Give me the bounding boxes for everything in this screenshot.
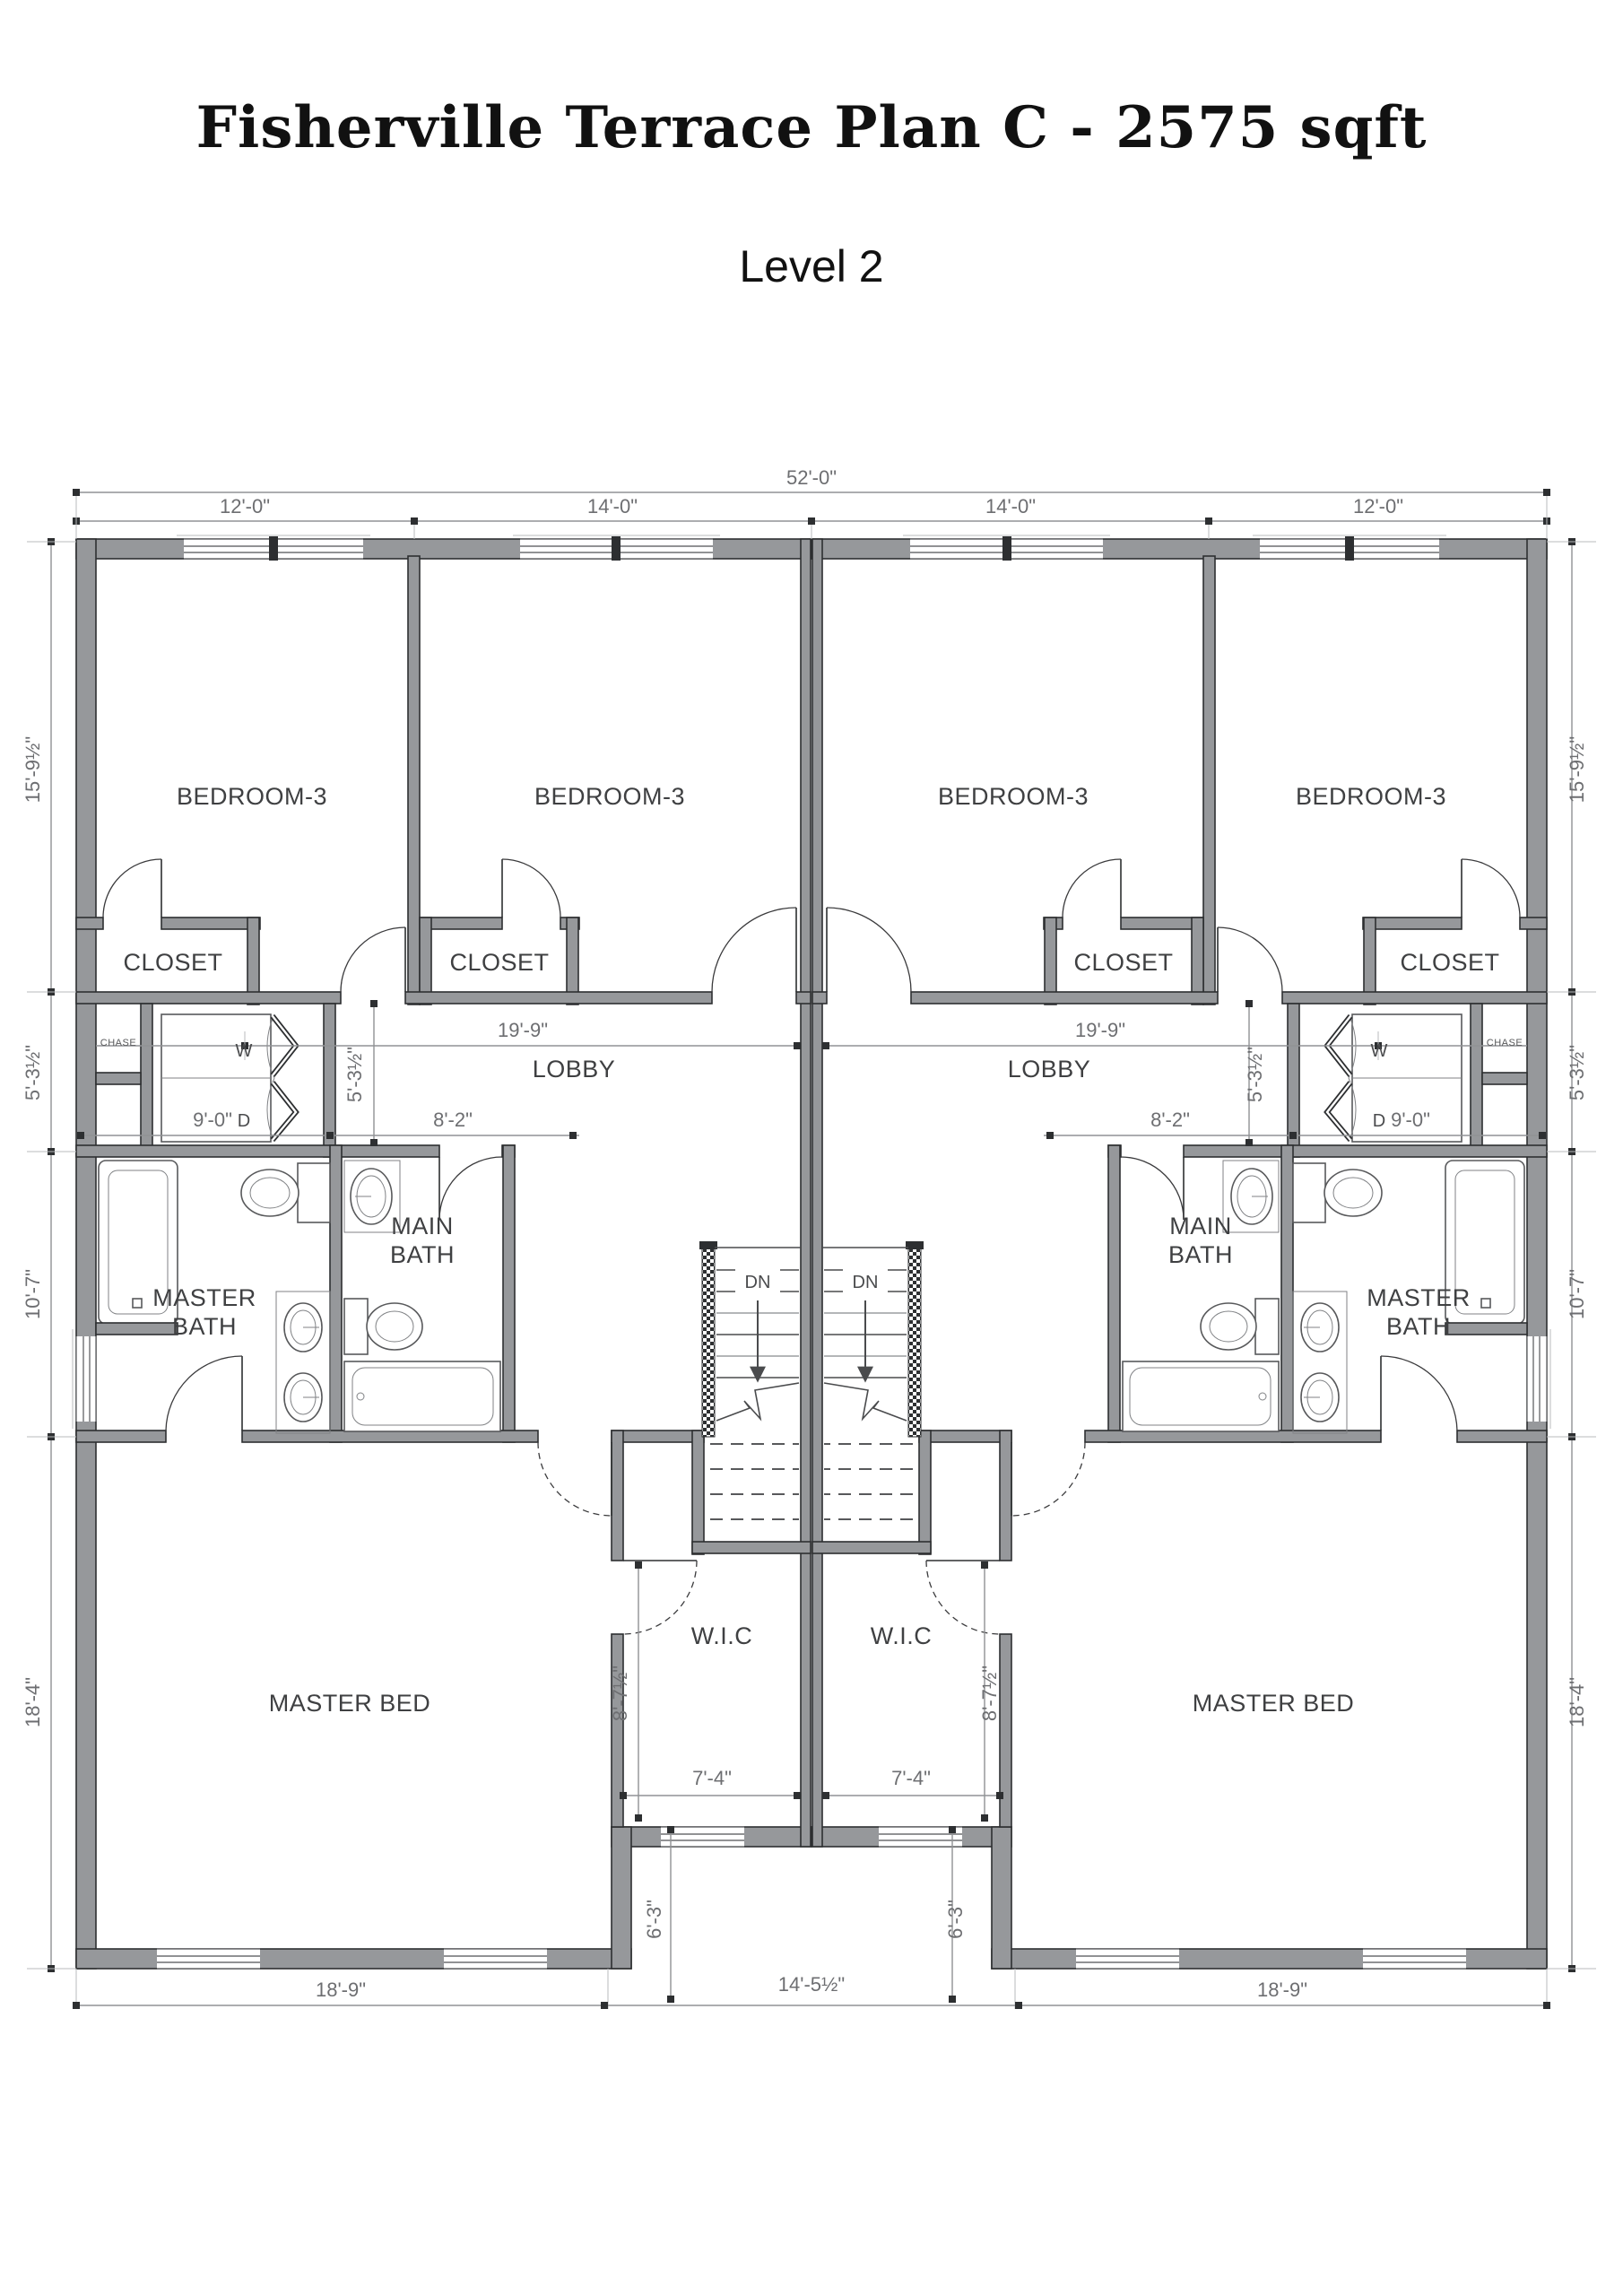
label-main-bath-right-1: MAIN xyxy=(1169,1213,1232,1239)
label-dryer-right: D xyxy=(1373,1111,1385,1131)
dim-laundry-right: 9'-0" xyxy=(1391,1109,1430,1131)
dim-wic-d-right: 8'-7½" xyxy=(978,1665,1001,1721)
dim-lines-global xyxy=(27,489,1596,2009)
dim-side1-right: 15'-9½" xyxy=(1566,736,1588,803)
label-closet-4: CLOSET xyxy=(1400,949,1499,976)
label-dn-right: DN xyxy=(853,1273,879,1292)
dim-wic-o-left: 6'-3" xyxy=(643,1900,665,1939)
dim-vanity-right: 8'-2" xyxy=(1150,1109,1190,1131)
dim-side2-left: 5'-3½" xyxy=(22,1045,44,1100)
dim-side4-right: 18'-4" xyxy=(1566,1677,1588,1727)
dim-laundry-left: 9'-0" xyxy=(193,1109,232,1131)
label-wic-right: W.I.C xyxy=(871,1622,933,1649)
dim-bottom-mid: 14'-5½" xyxy=(778,1973,845,1996)
dim-lobby-h-right: 5'-3½" xyxy=(1244,1047,1266,1102)
dim-bottom-right: 18'-9" xyxy=(1257,1979,1307,2001)
floor-plan: 52'-0" 12'-0" 14'-0" 14'-0" 12'-0" 15'-9… xyxy=(0,0,1623,2296)
dim-side3-right: 10'-7" xyxy=(1566,1269,1588,1319)
label-master-bed-left: MASTER BED xyxy=(269,1690,431,1717)
dim-vanity-left: 8'-2" xyxy=(433,1109,473,1131)
label-master-bed-right: MASTER BED xyxy=(1193,1690,1355,1717)
label-master-bath-right-2: BATH xyxy=(1386,1313,1451,1340)
label-bedroom3-3: BEDROOM-3 xyxy=(938,783,1089,810)
label-main-bath-left-2: BATH xyxy=(390,1241,455,1268)
dim-wic-o-right: 6'-3" xyxy=(944,1900,967,1939)
label-closet-2: CLOSET xyxy=(449,949,549,976)
dim-bottom-left: 18'-9" xyxy=(316,1979,366,2001)
label-washer-left: W xyxy=(236,1041,253,1061)
label-dryer-left: D xyxy=(238,1111,250,1131)
label-chase-right: CHASE xyxy=(1487,1038,1523,1048)
dim-overall: 52'-0" xyxy=(786,466,837,489)
dim-wic-w-right: 7'-4" xyxy=(891,1767,931,1789)
label-main-bath-right-2: BATH xyxy=(1168,1241,1233,1268)
label-washer-right: W xyxy=(1371,1041,1388,1061)
dim-side4-left: 18'-4" xyxy=(22,1677,44,1727)
dim-12-right: 12'-0" xyxy=(1353,495,1403,517)
dim-lobby-w-right: 19'-9" xyxy=(1075,1019,1125,1041)
dim-wic-d-left: 8'-7½" xyxy=(609,1665,631,1721)
dim-side3-left: 10'-7" xyxy=(22,1269,44,1319)
label-dn-left: DN xyxy=(745,1273,771,1292)
dim-wic-w-left: 7'-4" xyxy=(692,1767,732,1789)
dim-lobby-w-left: 19'-9" xyxy=(498,1019,548,1041)
label-bedroom3-2: BEDROOM-3 xyxy=(534,783,685,810)
label-master-bath-right-1: MASTER xyxy=(1367,1284,1471,1311)
dim-14-right: 14'-0" xyxy=(985,495,1036,517)
label-closet-3: CLOSET xyxy=(1073,949,1173,976)
dim-14-left: 14'-0" xyxy=(587,495,638,517)
label-master-bath-left-1: MASTER xyxy=(152,1284,256,1311)
label-bedroom3-1: BEDROOM-3 xyxy=(177,783,327,810)
dim-side1-left: 15'-9½" xyxy=(22,736,44,803)
label-wic-left: W.I.C xyxy=(691,1622,753,1649)
label-lobby-left: LOBBY xyxy=(533,1056,616,1083)
dim-12-left: 12'-0" xyxy=(220,495,270,517)
label-lobby-right: LOBBY xyxy=(1008,1056,1091,1083)
label-closet-1: CLOSET xyxy=(123,949,222,976)
dim-lobby-h-left: 5'-3½" xyxy=(343,1047,366,1102)
label-bedroom3-4: BEDROOM-3 xyxy=(1296,783,1446,810)
label-chase-left: CHASE xyxy=(100,1038,136,1048)
label-main-bath-left-1: MAIN xyxy=(391,1213,454,1239)
label-master-bath-left-2: BATH xyxy=(172,1313,237,1340)
dim-side2-right: 5'-3½" xyxy=(1566,1045,1588,1100)
